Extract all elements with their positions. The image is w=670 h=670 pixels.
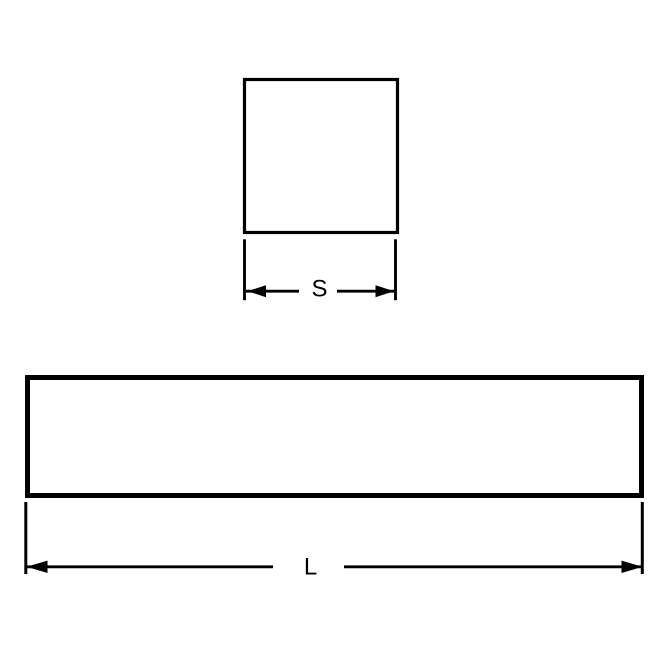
svg-text:S: S [311, 276, 327, 303]
svg-text:L: L [304, 554, 317, 581]
